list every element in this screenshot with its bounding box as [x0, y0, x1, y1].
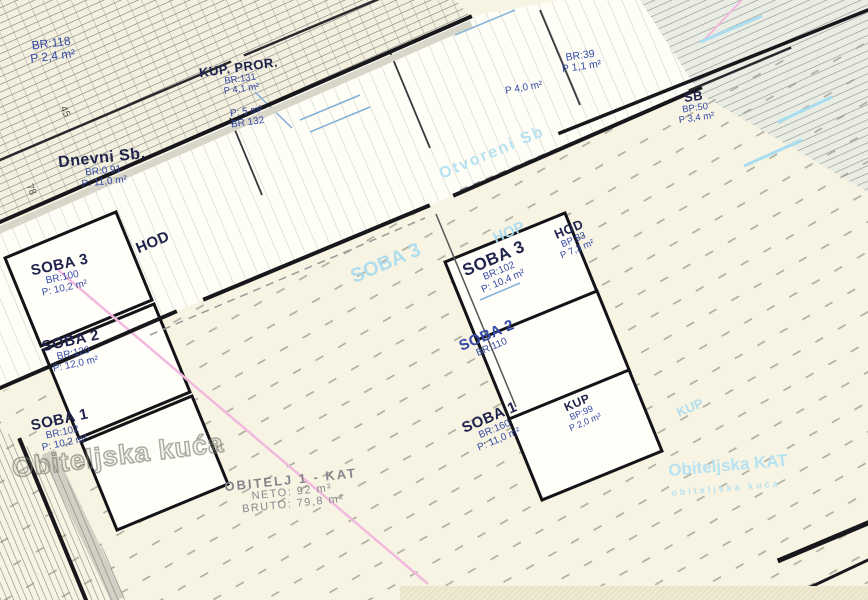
bottom-strip [400, 586, 868, 600]
floorplan-linework [0, 0, 868, 600]
floor-plan-image: BR:118 P 2,4 m² KUP. PROR. BR:131 P 4,1 … [0, 0, 868, 600]
label-br118: BR:118 P 2,4 m² [28, 34, 76, 65]
label-br132: P: 5 m² BR 132 [229, 105, 265, 131]
label-sb: SB BP:50 P 3,4 m² [675, 87, 715, 126]
